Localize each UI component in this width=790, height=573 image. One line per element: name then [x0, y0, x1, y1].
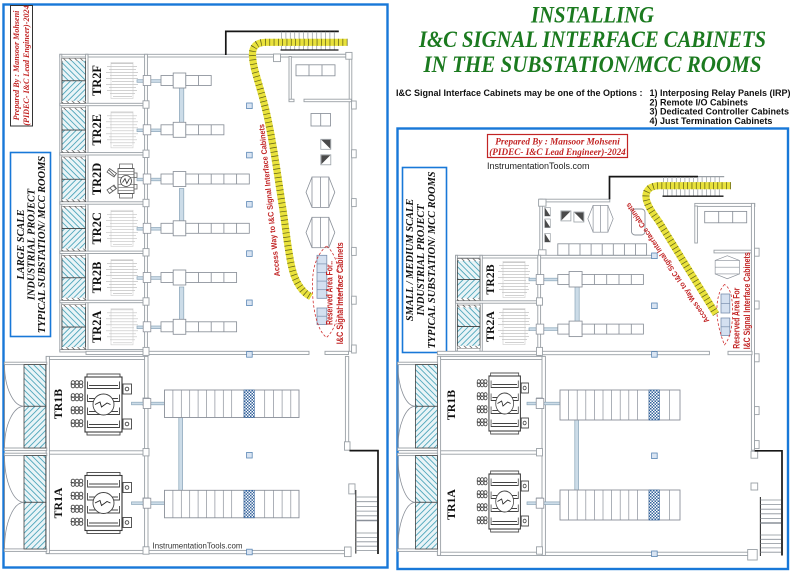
svg-text:TR2B: TR2B: [483, 264, 497, 294]
svg-text:LARGE SCALE: LARGE SCALE: [16, 209, 27, 280]
svg-text:InstrumentationTools.com: InstrumentationTools.com: [153, 542, 243, 551]
svg-text:TYPICAL SUBSTATION/ MCC ROOMS: TYPICAL SUBSTATION/ MCC ROOMS: [37, 156, 48, 333]
svg-text:Access Way to I&C Signal Inter: Access Way to I&C Signal Interface Cabin…: [624, 201, 711, 325]
svg-text:INDUSTRIAL PROJECT: INDUSTRIAL PROJECT: [27, 188, 38, 301]
svg-text:INSTALLING: INSTALLING: [530, 3, 654, 28]
svg-text:(PIDEC- I&C Lead Engineer)-202: (PIDEC- I&C Lead Engineer)-2024: [489, 147, 626, 157]
svg-text:TR2C: TR2C: [90, 212, 104, 244]
svg-text:Prepared By : Mansoor Mohseni: Prepared By : Mansoor Mohseni: [12, 10, 21, 120]
svg-text:TYPICAL SUBSTATION/ MCC ROOMS: TYPICAL SUBSTATION/ MCC ROOMS: [427, 171, 438, 348]
svg-text:TR2E: TR2E: [90, 114, 104, 146]
svg-text:TR2A: TR2A: [90, 311, 104, 343]
svg-text:SMALL / MEDIUM SCALE: SMALL / MEDIUM SCALE: [405, 199, 416, 321]
svg-text:Reserved Area For..: Reserved Area For..: [325, 261, 335, 325]
svg-text:TR1A: TR1A: [444, 489, 458, 520]
svg-text:TR1B: TR1B: [51, 389, 65, 419]
svg-text:(PIDEC- I&C Lead Engineer)-202: (PIDEC- I&C Lead Engineer)-2024: [22, 5, 31, 125]
svg-text:TR2A: TR2A: [483, 311, 497, 342]
svg-text:Prepared By : Mansoor Mohseni: Prepared By : Mansoor Mohseni: [495, 137, 620, 147]
svg-text:I&C Signal Interface Cabinets: I&C Signal Interface Cabinets may be one…: [396, 88, 643, 98]
svg-text:InstrumentationTools.com: InstrumentationTools.com: [487, 161, 590, 171]
svg-text:TR1B: TR1B: [444, 390, 458, 420]
svg-text:IN THE SUBSTATION/MCC ROOMS: IN THE SUBSTATION/MCC ROOMS: [423, 52, 762, 77]
svg-text:I&C Signal Interface Cabinets: I&C Signal Interface Cabinets: [742, 252, 752, 349]
svg-text:I&C SIGNAL INTERFACE CABINETS: I&C SIGNAL INTERFACE CABINETS: [418, 27, 766, 52]
svg-text:TR2B: TR2B: [90, 262, 104, 294]
svg-text:INDUSTRIAL PROJECT: INDUSTRIAL PROJECT: [416, 204, 427, 317]
svg-text:TR1A: TR1A: [51, 487, 65, 518]
svg-text:4) Just Termination Cabinets: 4) Just Termination Cabinets: [650, 116, 773, 126]
svg-text:Reserved Area For: Reserved Area For: [732, 287, 742, 348]
svg-text:I&C Signal Interface Cabinets: I&C Signal Interface Cabinets: [335, 242, 345, 344]
svg-text:TR2F: TR2F: [90, 65, 104, 96]
svg-text:TR2D: TR2D: [90, 163, 104, 195]
